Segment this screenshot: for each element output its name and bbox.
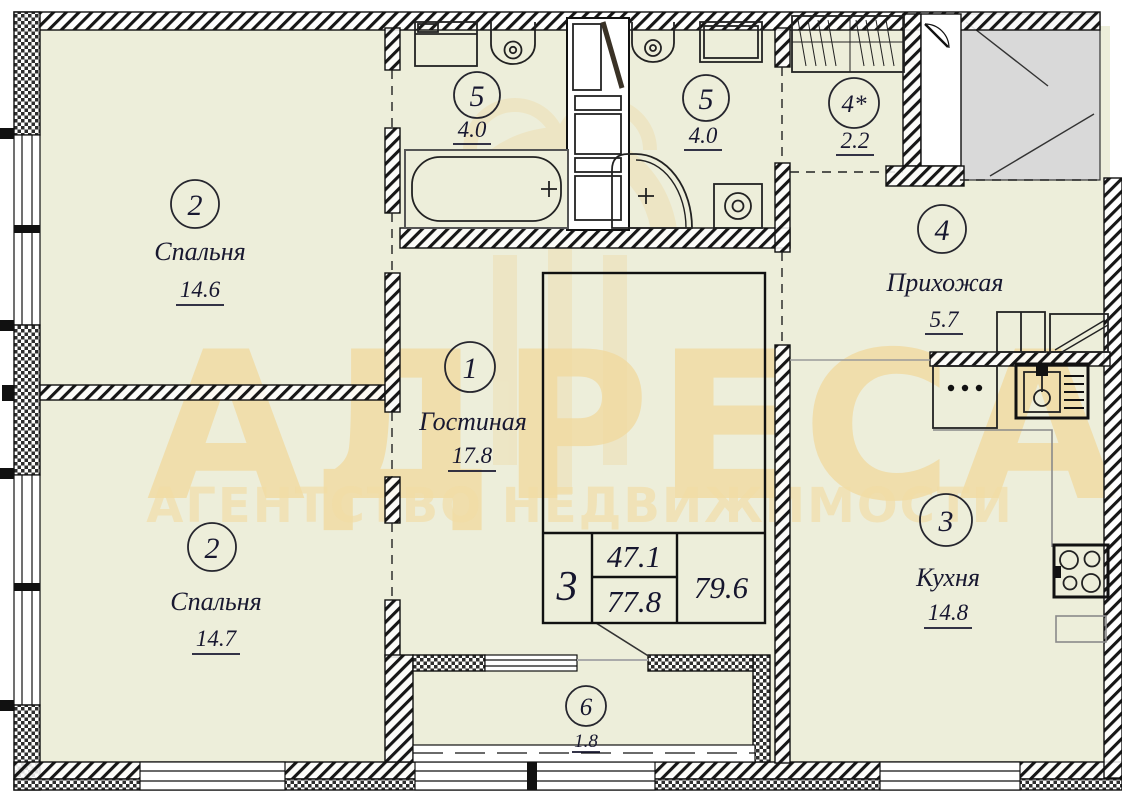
floor-plan-page: АДРЕСА АГЕНТСТВО НЕДВИЖИМОСТИ [0,0,1122,800]
window-bedroom-2 [14,475,40,705]
svg-text:3: 3 [938,505,954,538]
stairwell-area [960,14,1100,180]
watermark-tagline: АГЕНТСТВО НЕДВИЖИМОСТИ [146,478,1014,534]
summary-floor-area: 77.8 [607,584,662,619]
svg-text:Спальня: Спальня [170,587,262,616]
svg-text:Спальня: Спальня [154,237,246,266]
svg-text:1.8: 1.8 [574,731,598,752]
svg-text:2: 2 [188,189,203,222]
summary-living-area: 47.1 [607,539,661,574]
svg-text:5.7: 5.7 [930,307,960,332]
window-bedroom-2-south [140,762,285,790]
window-kitchen-south [880,762,1020,790]
svg-text:17.8: 17.8 [452,443,493,468]
entrance-door [921,14,961,166]
svg-text:5: 5 [699,83,714,116]
bathtub [405,150,568,228]
svg-text:Прихожая: Прихожая [886,268,1004,297]
svg-text:14.7: 14.7 [196,626,238,651]
svg-text:2: 2 [205,532,220,565]
svg-text:Гостиная: Гостиная [418,407,527,436]
svg-text:4.0: 4.0 [458,117,487,142]
floor-plan-canvas: АДРЕСА АГЕНТСТВО НЕДВИЖИМОСТИ [0,0,1122,800]
window-balcony-south [415,762,655,790]
summary-total-area: 79.6 [694,570,749,605]
ventilation-shaft [567,18,629,230]
balcony-window [485,655,577,671]
svg-text:5: 5 [470,80,485,113]
summary-rooms-count: 3 [556,564,578,610]
window-bedroom-1 [14,135,40,325]
svg-text:4: 4 [935,214,950,247]
svg-text:1: 1 [463,352,478,385]
svg-text:2.2: 2.2 [841,128,870,153]
svg-text:Кухня: Кухня [915,563,980,592]
svg-text:4.0: 4.0 [689,123,718,148]
svg-text:6: 6 [580,694,593,721]
svg-text:4*: 4* [842,91,868,118]
svg-text:14.8: 14.8 [928,600,969,625]
svg-text:14.6: 14.6 [180,277,221,302]
